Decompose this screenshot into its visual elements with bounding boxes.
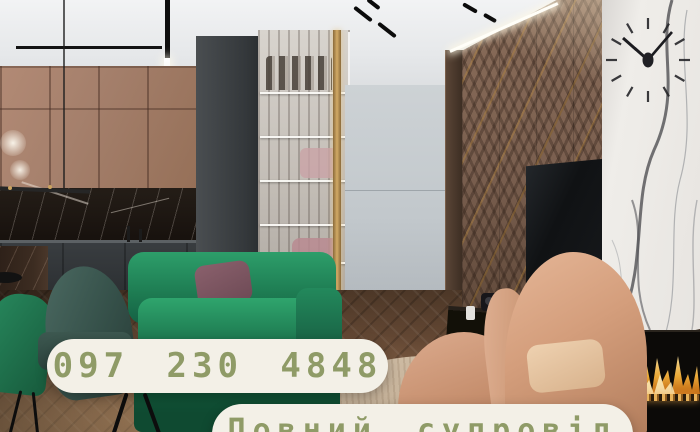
pendant-light-rod <box>165 0 170 64</box>
phone-number-pill: 097 230 4848 <box>47 339 388 393</box>
faucet-icon <box>127 226 130 242</box>
chandelier-globe <box>10 160 30 180</box>
interior-photo: 097 230 4848 Повний супровід <box>0 0 700 432</box>
wall-seam <box>345 190 449 191</box>
wall-clock-icon <box>602 6 698 116</box>
glassware-bottles <box>266 56 332 90</box>
cabinet-seam <box>0 108 196 110</box>
beige-pillow <box>526 338 607 394</box>
phone-number-text: 097 230 4848 <box>53 346 383 386</box>
chandelier-bulb <box>8 186 12 190</box>
chandelier-wire <box>63 0 65 188</box>
caption-text: Повний супровід <box>228 413 618 432</box>
track-light-rail <box>16 46 162 49</box>
gray-wall <box>345 85 449 303</box>
chandelier-globe <box>0 130 26 156</box>
chandelier-bulb <box>48 185 52 189</box>
caption-pill: Повний супровід <box>212 404 633 432</box>
marble-backsplash <box>0 188 196 242</box>
faucet-icon <box>139 229 142 242</box>
white-vase <box>466 306 475 320</box>
